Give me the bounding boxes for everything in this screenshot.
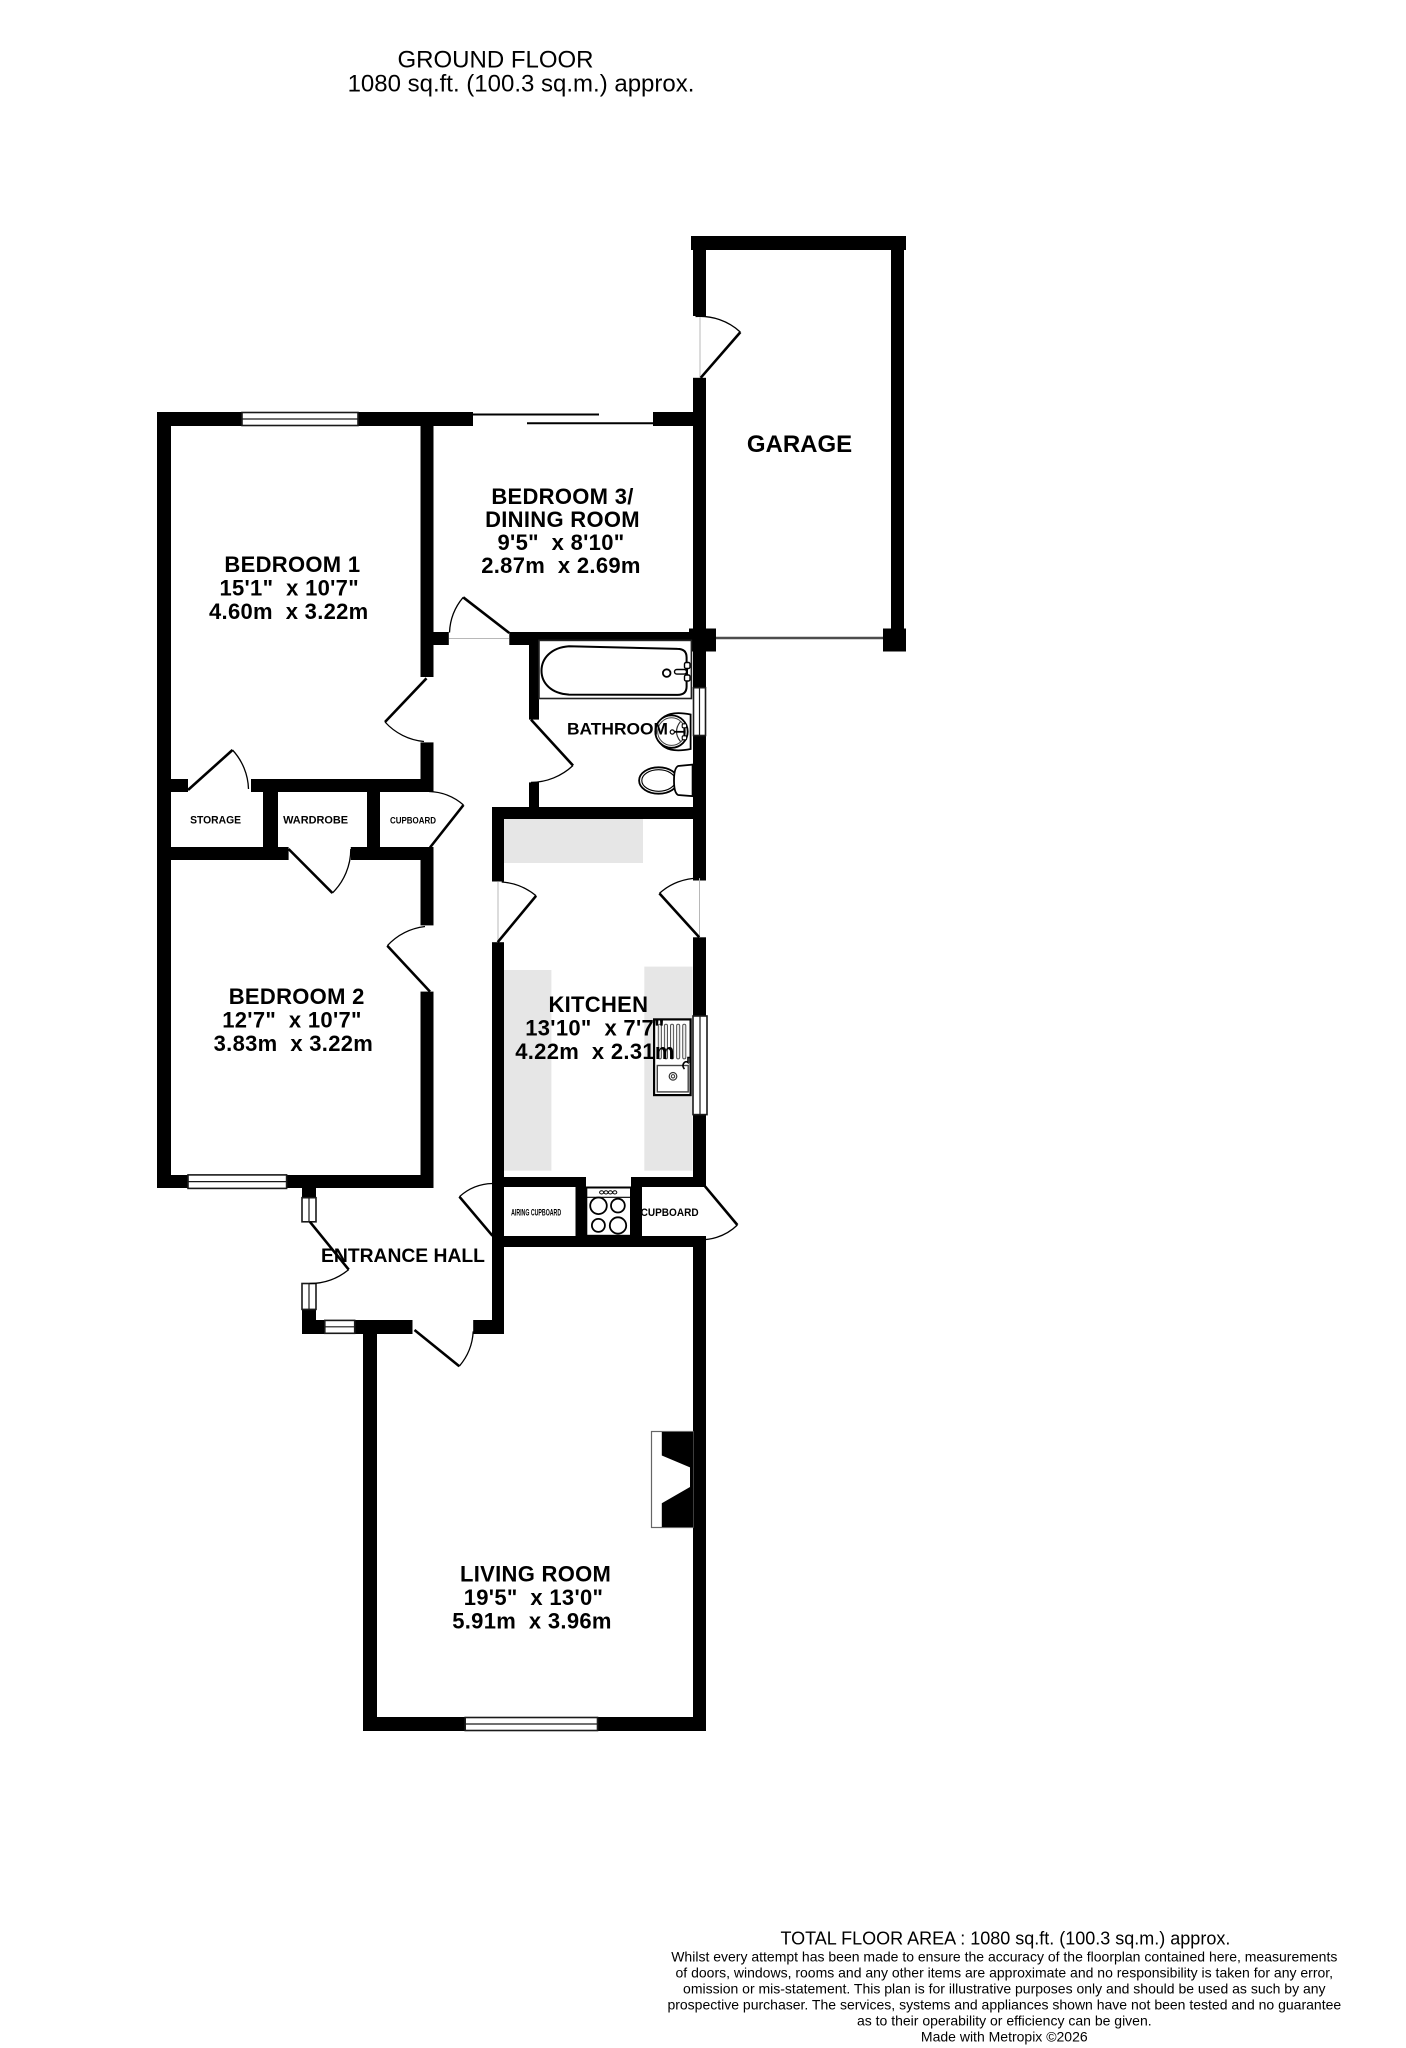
svg-text:12'7" x 10'7": 12'7" x 10'7"	[222, 1008, 362, 1033]
svg-text:5.91m x 3.96m: 5.91m x 3.96m	[452, 1609, 612, 1634]
svg-text:ENTRANCE HALL: ENTRANCE HALL	[321, 1246, 485, 1267]
svg-text:Whilst every attempt has been: Whilst every attempt has been made to en…	[671, 1948, 1337, 1964]
svg-text:BATHROOM: BATHROOM	[567, 720, 668, 739]
svg-text:BEDROOM 3/: BEDROOM 3/	[491, 484, 633, 509]
svg-text:4.22m x 2.31m: 4.22m x 2.31m	[515, 1039, 675, 1064]
svg-text:4.60m x 3.22m: 4.60m x 3.22m	[209, 599, 369, 624]
svg-text:STORAGE: STORAGE	[190, 815, 241, 827]
svg-text:DINING ROOM: DINING ROOM	[485, 507, 640, 532]
svg-text:Made with Metropix ©2026: Made with Metropix ©2026	[921, 2029, 1088, 2045]
svg-text:GROUND FLOOR: GROUND FLOOR	[397, 47, 593, 74]
svg-text:LIVING ROOM: LIVING ROOM	[460, 1562, 611, 1587]
svg-text:of doors, windows, rooms and a: of doors, windows, rooms and any other i…	[676, 1964, 1334, 1980]
svg-text:BEDROOM 1: BEDROOM 1	[224, 552, 360, 577]
svg-text:3.83m x 3.22m: 3.83m x 3.22m	[214, 1031, 374, 1056]
svg-text:CUPBOARD: CUPBOARD	[641, 1207, 699, 1219]
svg-text:as to their operability or eff: as to their operability or efficiency ca…	[857, 2013, 1152, 2029]
svg-text:BEDROOM 2: BEDROOM 2	[229, 984, 365, 1009]
svg-text:1080 sq.ft. (100.3 sq.m.) appr: 1080 sq.ft. (100.3 sq.m.) approx.	[348, 71, 695, 98]
svg-text:omission or mis-statement. Thi: omission or mis-statement. This plan is …	[683, 1980, 1326, 1996]
svg-text:AIRING CUPBOARD: AIRING CUPBOARD	[511, 1208, 561, 1219]
svg-text:19'5" x 13'0": 19'5" x 13'0"	[464, 1585, 604, 1610]
svg-text:15'1" x 10'7": 15'1" x 10'7"	[219, 576, 359, 601]
svg-text:2.87m x 2.69m: 2.87m x 2.69m	[481, 553, 641, 578]
svg-text:KITCHEN: KITCHEN	[548, 992, 648, 1017]
svg-text:TOTAL FLOOR AREA : 1080 sq.ft.: TOTAL FLOOR AREA : 1080 sq.ft. (100.3 sq…	[780, 1929, 1230, 1949]
svg-text:prospective purchaser. The ser: prospective purchaser. The services, sys…	[667, 1997, 1341, 2013]
svg-text:9'5" x 8'10": 9'5" x 8'10"	[498, 530, 625, 555]
svg-text:13'10" x 7'7": 13'10" x 7'7"	[525, 1016, 665, 1041]
svg-text:GARAGE: GARAGE	[747, 431, 852, 458]
svg-text:CUPBOARD: CUPBOARD	[390, 816, 436, 826]
svg-text:WARDROBE: WARDROBE	[283, 815, 348, 827]
